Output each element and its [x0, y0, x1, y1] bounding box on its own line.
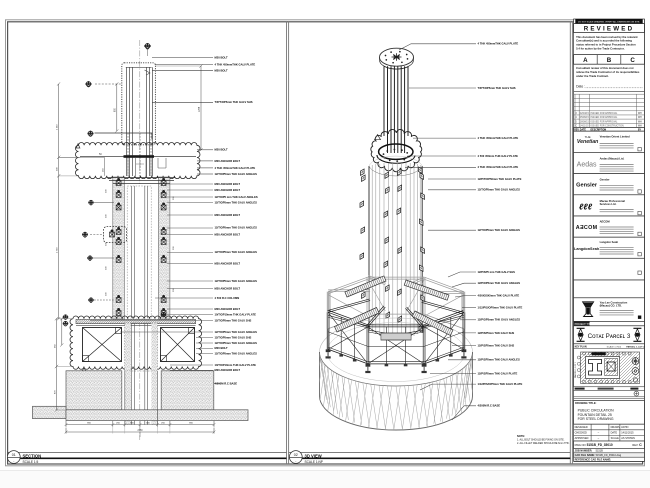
svg-text:SCALE: SCALE [611, 437, 620, 440]
svg-text:02: 02 [294, 453, 298, 457]
svg-text:12/T/OP5mm THK GALV ANGLES: 12/T/OP5mm THK GALV ANGLES [215, 352, 258, 356]
svg-text:T/P/T/OP5mm THK GALV SHS: T/P/T/OP5mm THK GALV SHS [215, 100, 253, 104]
svg-text:12/T/OP5mm THK GALV ANGLES: 12/T/OP5mm THK GALV ANGLES [215, 279, 258, 283]
svg-text:12/T/OP5 mm THK GALV ANGLES: 12/T/OP5 mm THK GALV ANGLES [215, 195, 258, 199]
svg-text:12/T/OP5mm THK GALV ANGLES: 12/T/OP5mm THK GALV ANGLES [215, 250, 258, 254]
svg-text:12/T/OP5mm THK GALV ANGLES: 12/T/OP5mm THK GALV ANGLES [215, 330, 258, 334]
svg-text:4 500 450mm THK GALV PLATE: 4 500 450mm THK GALV PLATE [478, 154, 519, 158]
svg-text:relieve the Trade Contractor o: relieve the Trade Contractor of its resp… [576, 70, 640, 74]
svg-text:4 THK 450mmTHK GALV PLATE: 4 THK 450mmTHK GALV PLATE [215, 166, 256, 170]
svg-text:Langdon Seah: Langdon Seah [600, 240, 619, 244]
svg-text:T/P/T/OP5mm THK GALV SHS: T/P/T/OP5mm THK GALV SHS [478, 86, 516, 90]
svg-text:PARCEL 1, LOT 2: PARCEL 1, LOT 2 [626, 345, 645, 348]
svg-text:3D VIEW: 3D VIEW [305, 453, 322, 458]
svg-text:DWG NO:: DWG NO: [575, 443, 587, 447]
svg-text:WH: WH [638, 121, 642, 123]
svg-text:4 THK 450mmTHK GALV PLATE: 4 THK 450mmTHK GALV PLATE [478, 165, 519, 169]
svg-text:Services Ltd.: Services Ltd. [600, 202, 617, 206]
svg-text:10/T/OP10mm THK GALV PLATE: 10/T/OP10mm THK GALV PLATE [215, 312, 257, 316]
svg-text:PUBLIC CIRCULATION: PUBLIC CIRCULATION [578, 408, 614, 412]
svg-text:Consultant(s) and is accorded: Consultant(s) and is accorded the follow… [576, 39, 632, 43]
svg-text:M20 BOLT: M20 BOLT [215, 148, 228, 152]
svg-text:28/08/15: 28/08/15 [580, 121, 590, 123]
svg-text:12/T/OP5mm THK GALV SHS: 12/T/OP5mm THK GALV SHS [215, 318, 252, 322]
svg-text:12/T/OP5mm THK GALV ANGLES: 12/T/OP5mm THK GALV ANGLES [478, 228, 521, 232]
svg-text:5.4 for action by the Trade Co: 5.4 for action by the Trade Contractor. [576, 47, 625, 51]
svg-text:(Macau) CO. LTD.: (Macau) CO. LTD. [600, 304, 622, 308]
svg-text:4/50X50X5mm THK GALV PLATE: 4/50X50X5mm THK GALV PLATE [478, 293, 520, 297]
svg-text:14/11/2015: 14/11/2015 [621, 432, 634, 435]
svg-text:1 350: 1 350 [56, 124, 58, 130]
svg-text:M20 ANCHOR BOLT: M20 ANCHOR BOLT [215, 307, 241, 311]
svg-text:4/200M R.C BASE: 4/200M R.C BASE [478, 404, 501, 408]
svg-text:ISSUED FOR APPROVAL: ISSUED FOR APPROVAL [591, 112, 618, 115]
svg-text:12/P/OP5mm THK GALV ANGLES: 12/P/OP5mm THK GALV ANGLES [478, 281, 521, 285]
svg-text:REFERENCE CAD FILE NAME:: REFERENCE CAD FILE NAME: [575, 458, 612, 461]
svg-text:THE: THE [585, 135, 591, 139]
svg-text:C: C [630, 57, 635, 64]
svg-text:M20 ANCHOR BOLT: M20 ANCHOR BOLT [215, 159, 241, 163]
svg-text:SCALE 1:5: SCALE 1:5 [23, 460, 39, 464]
svg-text:under the Trade Contract.: under the Trade Contract. [576, 74, 609, 78]
svg-text:Date :: Date : [576, 84, 585, 88]
svg-text:-: - [295, 460, 296, 464]
svg-text:SCALE 1:7500: SCALE 1:7500 [607, 345, 622, 348]
svg-text:M20 ANCHOR BOLT: M20 ANCHOR BOLT [215, 233, 241, 237]
svg-text:01: 01 [12, 453, 16, 457]
svg-text:-: - [13, 460, 14, 464]
svg-text:12/P/T/OP50mm THK GALV PLATE: 12/P/T/OP50mm THK GALV PLATE [478, 177, 522, 181]
svg-text:12/T/OP5mm THK GALV ANGLES: 12/T/OP5mm THK GALV ANGLES [478, 188, 521, 192]
svg-text:WH: WH [638, 117, 642, 119]
svg-text:status referred to in Projec: status referred to in Project Procedure … [576, 43, 636, 47]
svg-text:DRAWING TITLE:: DRAWING TITLE: [575, 401, 596, 405]
svg-text:This document has been revised: This document has been revised by the re… [576, 35, 637, 39]
svg-text:--: -- [598, 437, 600, 440]
svg-text:4 THK 450mmTHK GALV PLATE: 4 THK 450mmTHK GALV PLATE [215, 63, 256, 67]
svg-text:Consultant review of this docu: Consultant review of this document does … [576, 66, 634, 70]
svg-text:CAD FILE NAME:: CAD FILE NAME: [575, 454, 596, 457]
svg-text:2750: 2750 [137, 430, 143, 432]
svg-text:PARCEL 1, LOT 1: PARCEL 1, LOT 1 [574, 361, 577, 378]
svg-text:AƎCOM: AƎCOM [576, 225, 598, 231]
svg-text:2. ALL FILLET WELDED SHOULD BE: 2. ALL FILLET WELDED SHOULD BE 6mm THK. [517, 442, 570, 445]
svg-text:APPROVED: APPROVED [575, 437, 589, 440]
svg-text:12/P/OP5mm THK GALV ANGLES: 12/P/OP5mm THK GALV ANGLES [478, 318, 521, 322]
svg-text:M20 ANCHOR BOLT: M20 ANCHOR BOLT [215, 213, 241, 217]
svg-text:KEY PLAN: KEY PLAN [575, 345, 587, 348]
svg-text:M20 ANCHOR BOLT: M20 ANCHOR BOLT [215, 286, 241, 290]
svg-text:REVIEWED: REVIEWED [584, 26, 635, 33]
svg-text:1/12/P/S/OP5mm THK GALV PLATE: 1/12/P/S/OP5mm THK GALV PLATE [478, 382, 523, 386]
svg-text:12/T/OP5mm THK GALV ANGLES: 12/T/OP5mm THK GALV ANGLES [215, 341, 258, 345]
svg-text:2 700: 2 700 [56, 247, 58, 253]
svg-text:M20 ANCHOR BOLT: M20 ANCHOR BOLT [215, 261, 241, 265]
svg-text:ISSUED FOR APPROVAL: ISSUED FOR APPROVAL [591, 120, 618, 123]
svg-text:AECOM: AECOM [600, 220, 611, 224]
svg-text:SCALE 1:NP: SCALE 1:NP [305, 460, 323, 464]
svg-text:10/T/OP10mm THK GALV PLATE: 10/T/OP10mm THK GALV PLATE [215, 363, 257, 367]
svg-text:12/P/SP5mm THK GALV PLATE: 12/P/SP5mm THK GALV PLATE [478, 371, 518, 375]
svg-text:WH: WH [638, 113, 642, 115]
svg-text:5151B_FD_35010.dwg: 5151B_FD_35010.dwg [596, 454, 622, 457]
svg-text:DESIGNED: DESIGNED [575, 426, 588, 429]
svg-text:12/P/SP5 mm THK GALV SHS: 12/P/SP5 mm THK GALV SHS [478, 270, 516, 274]
svg-text:DATE: DATE [611, 432, 618, 435]
svg-text:1/12/P/S/OP5mm THK GALV PLATE: 1/12/P/S/OP5mm THK GALV PLATE [478, 306, 523, 310]
svg-text:DO NOT SCALE DRAWING. VERIFY A: DO NOT SCALE DRAWING. VERIFY ALL DIMENSI… [578, 20, 640, 23]
svg-text:Cᴏᴛᴀɪ Pᴀʀᴄᴇʟ 3: Cᴏᴛᴀɪ Pᴀʀᴄᴇʟ 3 [588, 333, 631, 340]
svg-text:FOR STEEL DRAWING: FOR STEEL DRAWING [578, 417, 614, 421]
svg-text:M20 ANCHOR BOLT: M20 ANCHOR BOLT [215, 182, 241, 186]
svg-text:Gensler: Gensler [576, 183, 598, 189]
svg-text:NOTE:: NOTE: [517, 434, 525, 438]
svg-text:M20 BOLT: M20 BOLT [215, 346, 228, 350]
svg-text:ISSUED FOR APPROVAL: ISSUED FOR APPROVAL [591, 116, 618, 119]
svg-text:M20 ANCHOR BOLT: M20 ANCHOR BOLT [215, 188, 241, 192]
svg-text:M20 BOLT: M20 BOLT [215, 69, 228, 73]
svg-text:5151B: 5151B [596, 450, 604, 453]
svg-text:12/T/OP5mm THK GALV ANGLES: 12/T/OP5mm THK GALV ANGLES [215, 201, 258, 205]
svg-text:05/06/15: 05/06/15 [580, 117, 590, 119]
svg-text:12/P/SP5mm THK GALV SHS: 12/P/SP5mm THK GALV SHS [478, 331, 515, 335]
svg-text:AS SHOWN: AS SHOWN [621, 437, 635, 440]
svg-text:CHECKED: CHECKED [575, 432, 587, 435]
svg-text:M20 BOLT: M20 BOLT [215, 56, 228, 60]
svg-text:4 500 R.C COLUMN: 4 500 R.C COLUMN [215, 296, 240, 300]
svg-text:4 THK 450mmTHK GALV PLATE: 4 THK 450mmTHK GALV PLATE [478, 136, 519, 140]
svg-text:Gensler: Gensler [600, 177, 610, 181]
svg-text:FOUNTAIN DETAIL 25: FOUNTAIN DETAIL 25 [578, 413, 612, 417]
svg-text:12/T/OP5mm THK GALV ANGLES: 12/T/OP5mm THK GALV ANGLES [215, 226, 258, 230]
svg-text:SECTION: SECTION [23, 453, 42, 458]
svg-text:1785: 1785 [199, 106, 201, 112]
svg-text:JOB NUMBER:: JOB NUMBER: [575, 450, 593, 453]
svg-text:LWHO: LWHO [621, 426, 628, 429]
svg-text:PROJECT TITLE: PROJECT TITLE [575, 323, 594, 326]
svg-text:LangdonSeah: LangdonSeah [574, 247, 600, 251]
svg-text:12/P/SP5mm THK GALV ANGLES: 12/P/SP5mm THK GALV ANGLES [478, 358, 520, 362]
svg-text:Aedas (Macau) Ltd.: Aedas (Macau) Ltd. [600, 156, 625, 160]
svg-text:4 THK 450mmTHK GALV PLATE: 4 THK 450mmTHK GALV PLATE [478, 42, 519, 46]
svg-text:12/P/SP5mm THK GALV SHS: 12/P/SP5mm THK GALV SHS [478, 344, 515, 348]
svg-text:B: B [607, 57, 612, 64]
svg-text:12/T/OP5mm THK GALV ANGLES: 12/T/OP5mm THK GALV ANGLES [215, 172, 258, 176]
svg-text:Venetian: Venetian [577, 139, 598, 145]
svg-text:ℓℓℓ: ℓℓℓ [579, 202, 593, 212]
svg-text:REV: C: REV: C [632, 443, 642, 447]
svg-text:5151B_FD_35010: 5151B_FD_35010 [587, 443, 613, 447]
svg-text:M20 ANCHOR BOLT: M20 ANCHOR BOLT [215, 368, 241, 372]
svg-text:4/200M R.C BASE: 4/200M R.C BASE [215, 381, 238, 385]
svg-text:--: -- [598, 432, 600, 435]
svg-text:DRAWN: DRAWN [611, 426, 621, 429]
svg-text:A: A [583, 57, 588, 64]
svg-text:Venetian Orient Limited: Venetian Orient Limited [600, 135, 630, 139]
svg-text:12/T/OP5mm THK GALV SHS: 12/T/OP5mm THK GALV SHS [215, 335, 252, 339]
svg-text:Aedas: Aedas [577, 162, 597, 169]
svg-text:02/04/15: 02/04/15 [580, 113, 590, 115]
